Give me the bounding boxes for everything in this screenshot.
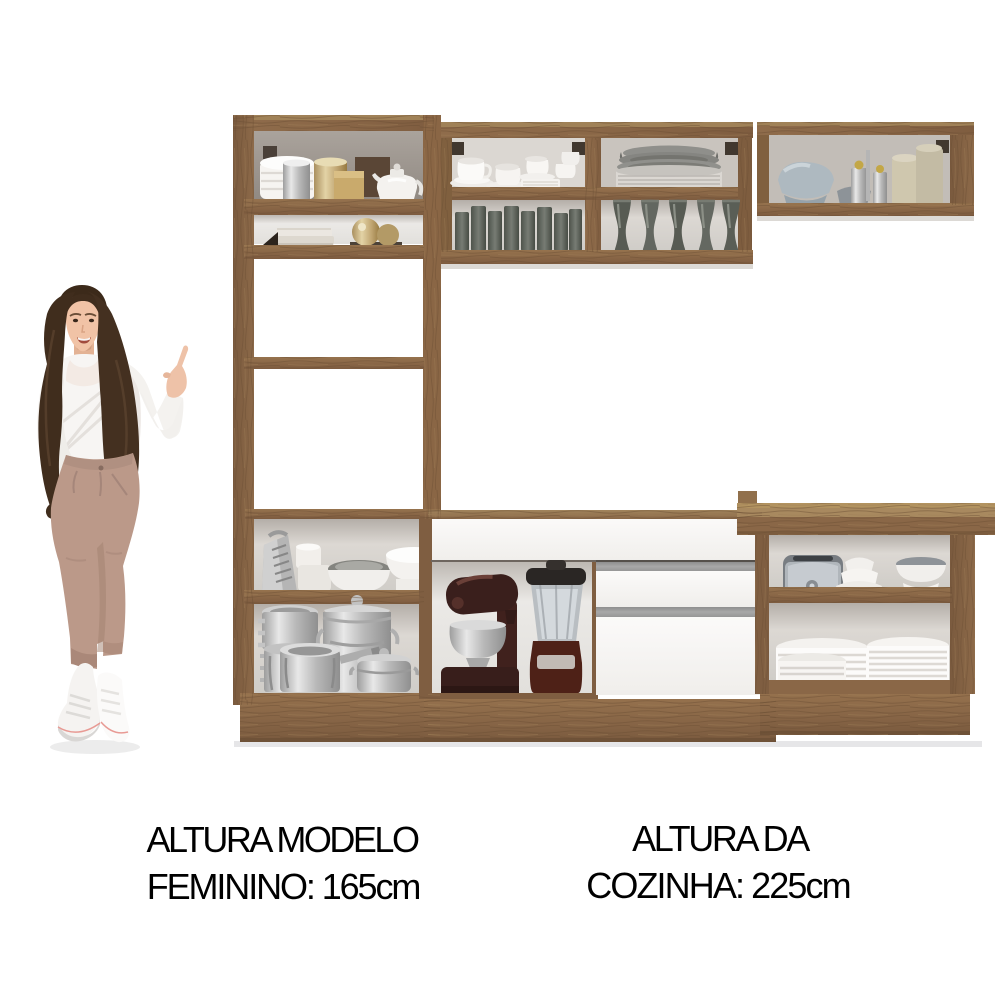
- svg-text:COZINHA: 225cm: COZINHA: 225cm: [586, 865, 849, 906]
- svg-text:ALTURA MODELO: ALTURA MODELO: [147, 819, 419, 860]
- svg-text:ALTURA DA: ALTURA DA: [632, 818, 810, 859]
- svg-text:FEMININO: 165cm: FEMININO: 165cm: [147, 866, 420, 907]
